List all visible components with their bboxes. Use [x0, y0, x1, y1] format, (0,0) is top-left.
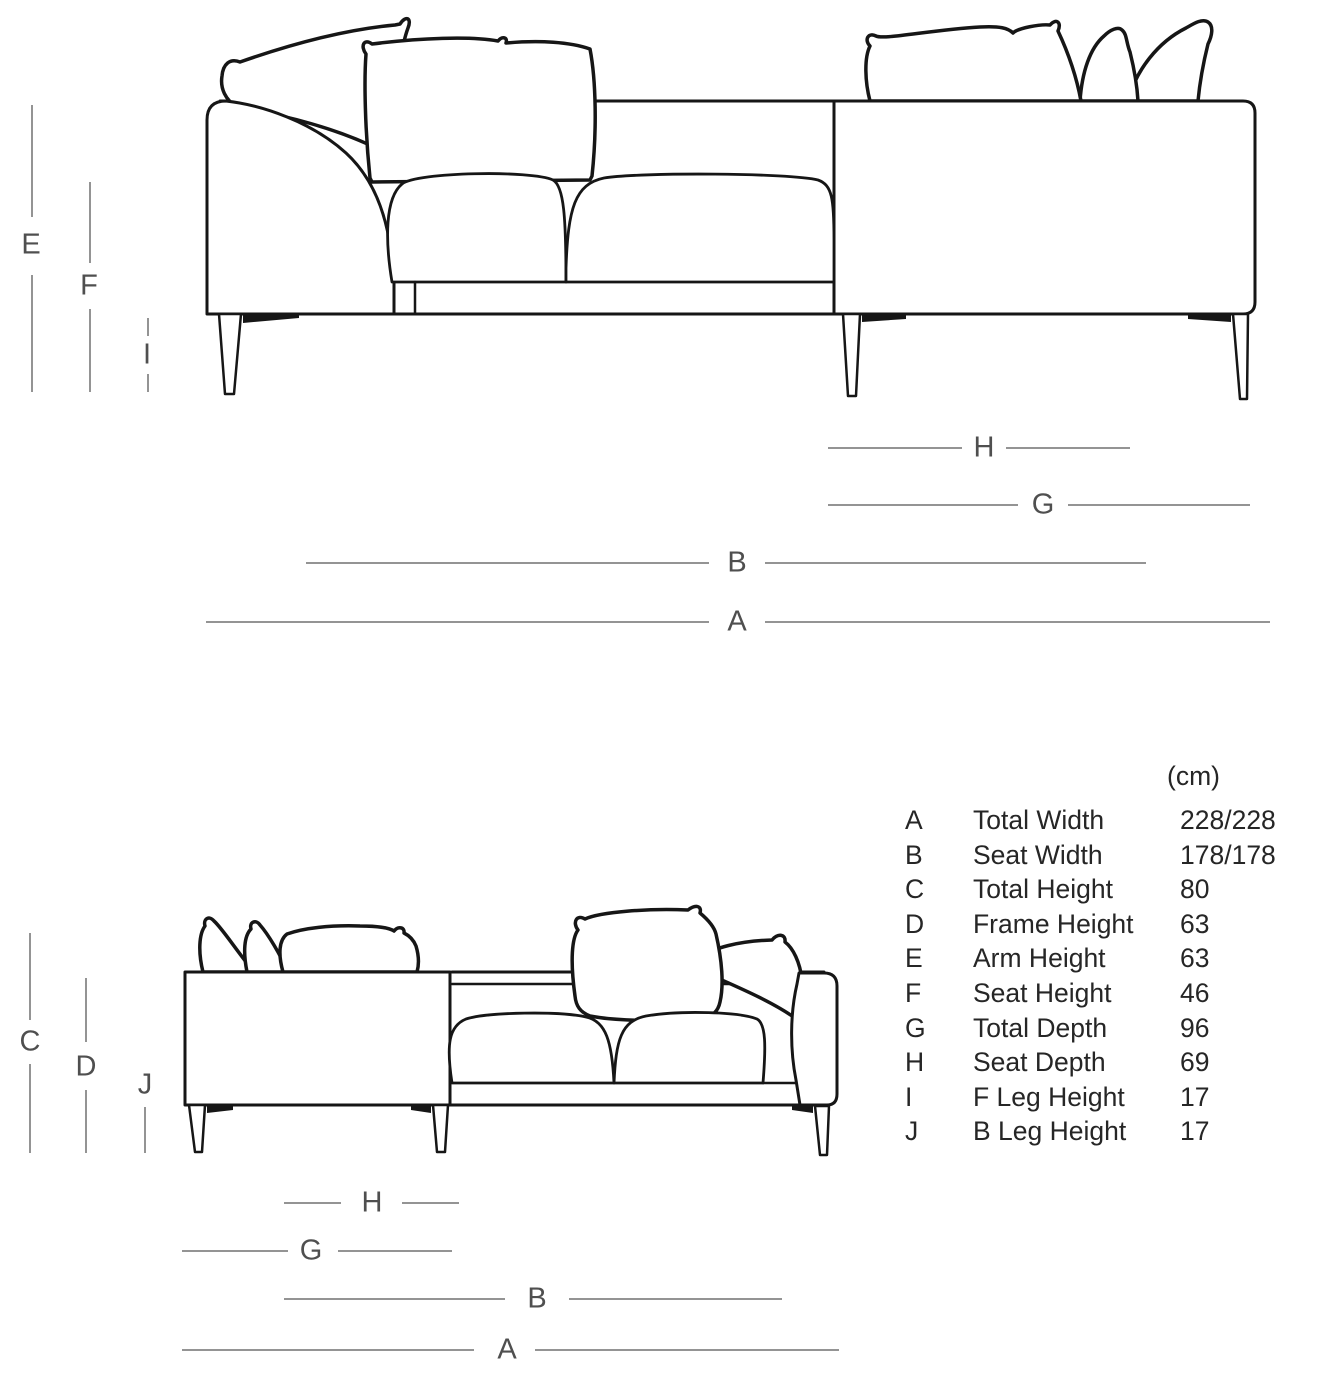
- table-row: J B Leg Height 17: [905, 1114, 1313, 1149]
- row-value: 63: [1180, 907, 1313, 942]
- row-key: I: [905, 1080, 973, 1115]
- sofa-line-art: [0, 0, 1321, 1382]
- top-chaise-box: [834, 101, 1255, 314]
- row-label: Seat Depth: [973, 1045, 1180, 1080]
- row-key: F: [905, 976, 973, 1011]
- sofa-leg: [189, 1105, 205, 1152]
- row-key: H: [905, 1045, 973, 1080]
- bottom-seat-cushion: [449, 1013, 614, 1083]
- row-key: C: [905, 872, 973, 907]
- row-label: Arm Height: [973, 941, 1180, 976]
- row-key: E: [905, 941, 973, 976]
- unit-label: (cm): [1167, 763, 1220, 790]
- row-key: A: [905, 803, 973, 838]
- row-key: D: [905, 907, 973, 942]
- top-view-sofa: [207, 19, 1255, 399]
- pillow-icon: [363, 38, 595, 182]
- dim-label-D: D: [76, 1053, 97, 1082]
- table-row: C Total Height 80: [905, 872, 1313, 907]
- dim-label-C: C: [20, 1028, 41, 1057]
- leg-plate: [243, 315, 299, 323]
- dim-label-G: G: [1032, 491, 1055, 520]
- row-key: J: [905, 1114, 973, 1149]
- leg-plate: [862, 315, 906, 322]
- row-value: 63: [1180, 941, 1313, 976]
- row-value: 178/178: [1180, 838, 1313, 873]
- row-label: Total Height: [973, 872, 1180, 907]
- table-row: I F Leg Height 17: [905, 1080, 1313, 1115]
- table-row: F Seat Height 46: [905, 976, 1313, 1011]
- row-value: 228/228: [1180, 803, 1313, 838]
- dim-label-J: J: [138, 1071, 153, 1100]
- dim-label-I: I: [143, 341, 151, 370]
- dim-label-B: B: [727, 549, 746, 578]
- sofa-dimensions-diagram: E F I H G B A C D J H G B A (cm) A Total…: [0, 0, 1321, 1382]
- sofa-leg: [433, 1105, 448, 1152]
- row-label: Seat Height: [973, 976, 1180, 1011]
- sofa-leg: [843, 314, 860, 396]
- row-label: B Leg Height: [973, 1114, 1180, 1149]
- row-value: 46: [1180, 976, 1313, 1011]
- dim-label-G: G: [300, 1237, 323, 1266]
- bottom-right-arm: [792, 973, 837, 1105]
- sofa-leg: [1233, 314, 1248, 399]
- bottom-corner-box: [185, 972, 450, 1105]
- row-key: B: [905, 838, 973, 873]
- top-seat-cushion: [566, 174, 834, 282]
- dim-label-A: A: [727, 608, 746, 637]
- pillow-icon: [280, 926, 418, 972]
- sofa-leg: [219, 314, 241, 394]
- pillow-icon: [572, 906, 722, 1020]
- row-label: Seat Width: [973, 838, 1180, 873]
- table-row: B Seat Width 178/178: [905, 838, 1313, 873]
- leg-plate: [207, 1106, 233, 1113]
- table-row: A Total Width 228/228: [905, 803, 1313, 838]
- dimensions-table: A Total Width 228/228 B Seat Width 178/1…: [905, 803, 1313, 1149]
- table-row: D Frame Height 63: [905, 907, 1313, 942]
- table-row: G Total Depth 96: [905, 1011, 1313, 1046]
- leg-plate: [1188, 315, 1231, 322]
- dim-label-F: F: [80, 272, 98, 301]
- leg-plate: [792, 1106, 813, 1113]
- row-label: F Leg Height: [973, 1080, 1180, 1115]
- row-key: G: [905, 1011, 973, 1046]
- pillow-icon: [1080, 28, 1138, 101]
- table-row: E Arm Height 63: [905, 941, 1313, 976]
- sofa-leg: [815, 1106, 829, 1155]
- row-value: 17: [1180, 1080, 1313, 1115]
- leg-plate: [411, 1106, 431, 1113]
- row-label: Total Width: [973, 803, 1180, 838]
- dim-label-H: H: [362, 1189, 383, 1218]
- dim-label-A: A: [497, 1336, 516, 1365]
- pillow-icon: [866, 21, 1081, 101]
- row-value: 96: [1180, 1011, 1313, 1046]
- bottom-seat-cushion: [614, 1012, 765, 1083]
- row-label: Total Depth: [973, 1011, 1180, 1046]
- row-value: 69: [1180, 1045, 1313, 1080]
- table-row: H Seat Depth 69: [905, 1045, 1313, 1080]
- row-value: 80: [1180, 872, 1313, 907]
- pillow-icon: [1128, 21, 1212, 101]
- dim-label-B: B: [527, 1285, 546, 1314]
- dim-label-H: H: [974, 434, 995, 463]
- top-seat-cushion: [388, 174, 566, 282]
- dim-label-E: E: [21, 231, 40, 260]
- bottom-view-sofa: [185, 906, 837, 1155]
- row-value: 17: [1180, 1114, 1313, 1149]
- row-label: Frame Height: [973, 907, 1180, 942]
